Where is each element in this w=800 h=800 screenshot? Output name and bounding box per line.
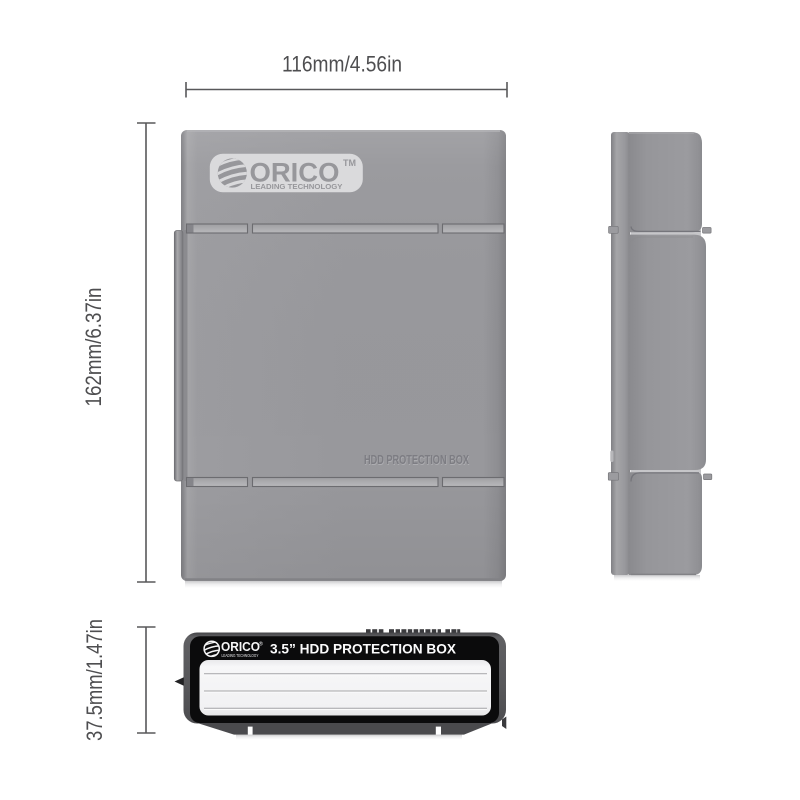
svg-text:37.5mm/1.47in: 37.5mm/1.47in	[82, 619, 107, 741]
svg-text:162mm/6.37in: 162mm/6.37in	[81, 288, 106, 407]
svg-text:ORICO: ORICO	[221, 639, 260, 654]
svg-text:LEADING TECHNOLOGY: LEADING TECHNOLOGY	[222, 653, 259, 658]
svg-text:®: ®	[259, 641, 263, 648]
svg-text:LEADING TECHNOLOGY: LEADING TECHNOLOGY	[251, 182, 343, 191]
svg-text:TM: TM	[343, 158, 356, 168]
svg-text:116mm/4.56in: 116mm/4.56in	[282, 52, 402, 77]
svg-text:HDD PROTECTION BOX: HDD PROTECTION BOX	[364, 453, 469, 467]
svg-text:3.5” HDD PROTECTION BOX: 3.5” HDD PROTECTION BOX	[270, 642, 457, 657]
